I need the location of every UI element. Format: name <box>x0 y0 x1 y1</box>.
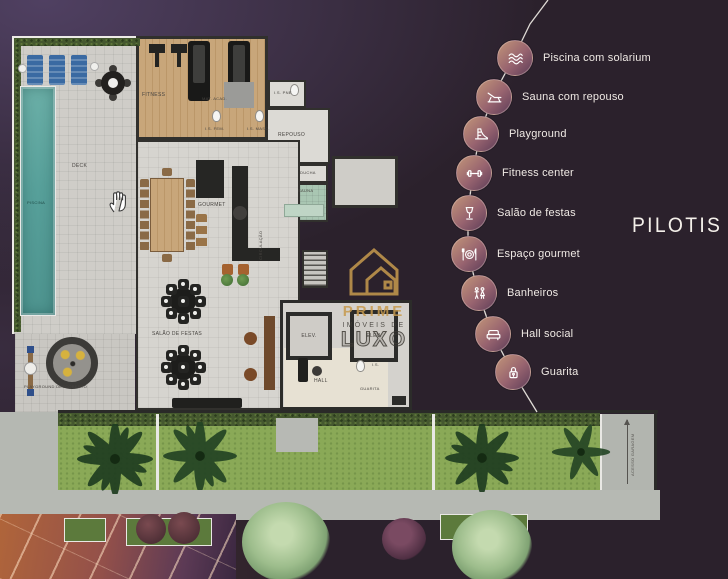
legend-circle <box>463 116 499 152</box>
legend-item-guarita: Guarita <box>495 354 578 390</box>
glass-icon <box>460 204 479 223</box>
legend-label: Hall social <box>521 328 573 340</box>
restroom-icon <box>470 284 489 303</box>
legend-label: Salão de festas <box>497 207 576 219</box>
lock-guard-icon <box>504 363 523 382</box>
legend-item-gourmet: Espaço gourmet <box>451 236 580 272</box>
hand-cursor <box>106 186 132 214</box>
legend-item-playground: Playground <box>463 116 567 152</box>
legend-label: Espaço gourmet <box>497 248 580 260</box>
lounger-icon <box>485 88 504 107</box>
legend-label: Sauna com repouso <box>522 91 624 103</box>
page-title: PILOTIS <box>632 214 722 238</box>
slide-icon <box>472 125 491 144</box>
cutlery-plate-icon <box>460 245 479 264</box>
legend-circle <box>451 195 487 231</box>
dumbbell-icon <box>465 164 484 183</box>
sofa-icon <box>484 325 503 344</box>
waves-icon <box>506 49 525 68</box>
legend-item-fitness: Fitness center <box>456 155 574 191</box>
legend-circle <box>476 79 512 115</box>
legend-item-sauna: Sauna com repouso <box>476 79 624 115</box>
pilotis-floorplan-view: PISCINA DECK PLAYGROUND DESCOBERTO FITNE… <box>0 0 728 579</box>
legend-circle <box>497 40 533 76</box>
legend-label: Banheiros <box>507 287 558 299</box>
legend-label: Piscina com solarium <box>543 52 651 64</box>
legend-circle <box>456 155 492 191</box>
legend-item-hall: Hall social <box>475 316 573 352</box>
legend-circle <box>495 354 531 390</box>
legend-label: Guarita <box>541 366 578 378</box>
legend-label: Fitness center <box>502 167 574 179</box>
legend-circle <box>461 275 497 311</box>
legend-item-salao: Salão de festas <box>451 195 576 231</box>
legend-circle <box>451 236 487 272</box>
legend-circle <box>475 316 511 352</box>
legend-label: Playground <box>509 128 567 140</box>
legend-item-banheiros: Banheiros <box>461 275 558 311</box>
legend-item-piscina: Piscina com solarium <box>497 40 651 76</box>
